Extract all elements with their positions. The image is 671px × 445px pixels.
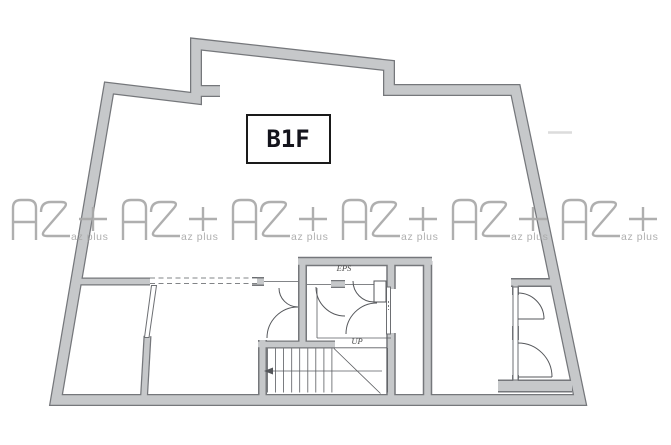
staircase — [264, 282, 391, 394]
door-arc — [346, 303, 377, 334]
watermark-caption: az plus — [291, 231, 328, 243]
thin-partitions — [145, 278, 519, 380]
door-arc — [267, 307, 298, 338]
floor-plan-page: B1F EPS UP az plus az plus az plus az pl… — [0, 0, 671, 445]
az-plus-watermark: az plus — [123, 200, 218, 243]
floor-label: B1F — [266, 125, 309, 153]
az-plus-watermark: az plus — [343, 200, 438, 243]
left-room-partition-upper — [145, 286, 157, 338]
closet-west-thin-wall — [513, 287, 518, 380]
watermark-caption: az plus — [621, 231, 658, 243]
watermark-caption: az plus — [401, 231, 438, 243]
closet-door-lower — [518, 343, 552, 377]
watermark-caption: az plus — [71, 231, 108, 243]
floor-plan-svg: B1F EPS UP az plus az plus az plus az pl… — [0, 0, 671, 445]
watermark-row: az plus az plus az plus az plus az plus … — [13, 200, 658, 243]
az-plus-watermark: az plus — [233, 200, 328, 243]
door-leaf — [374, 281, 386, 302]
door-swings — [267, 281, 552, 377]
door-arc — [316, 287, 345, 316]
eps-shaft-label: EPS — [336, 263, 352, 273]
az-plus-watermark: az plus — [563, 200, 658, 243]
watermark-caption: az plus — [181, 231, 218, 243]
door-arc — [279, 288, 298, 307]
closet-door-upper — [518, 293, 544, 319]
watermark-caption: az plus — [511, 231, 548, 243]
stair-hall-door-frame — [387, 287, 391, 334]
stair-treads — [268, 349, 332, 393]
up-label: UP — [351, 336, 362, 346]
